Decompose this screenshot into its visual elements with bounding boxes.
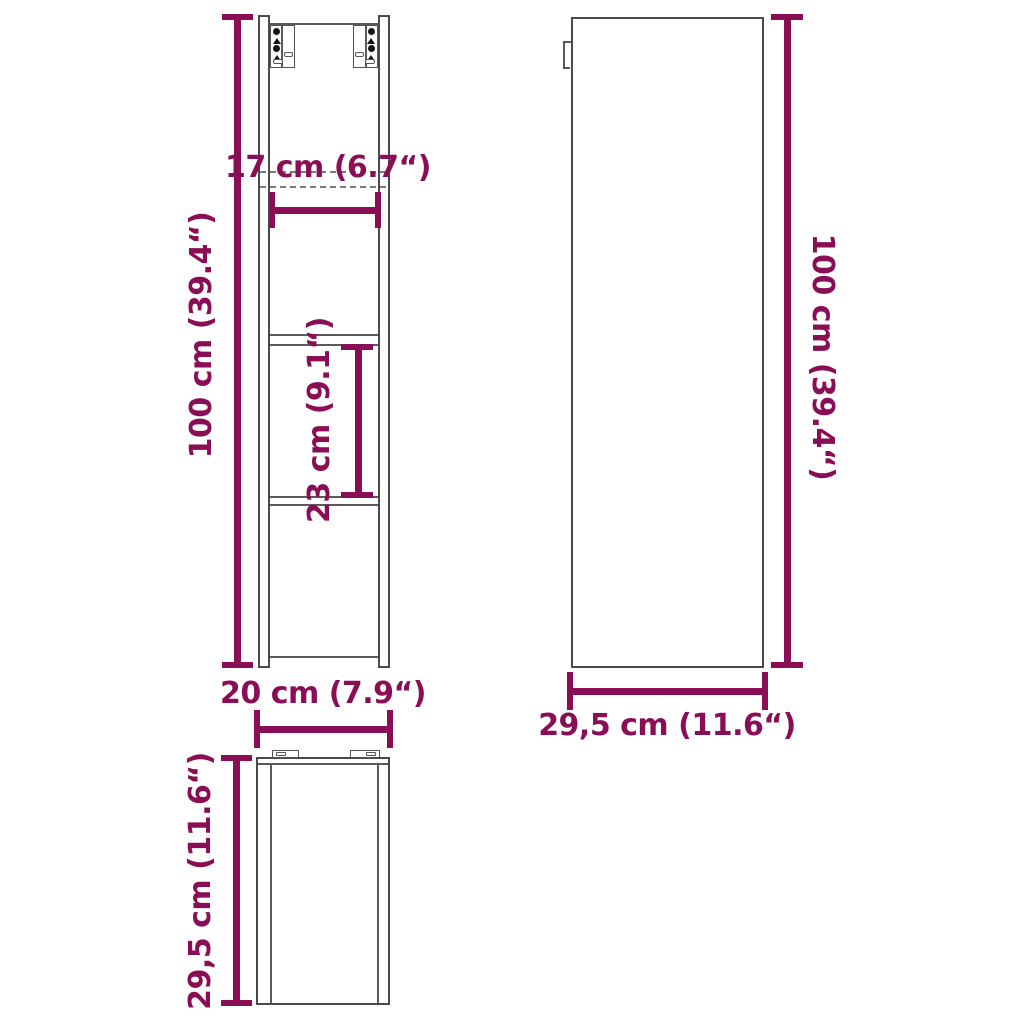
dim-cap [341, 492, 373, 498]
top-view-right-wall [377, 765, 379, 1003]
front-shelf-spacing-label: 23 cm (9.1“) [302, 300, 338, 540]
bracket-screw [273, 28, 280, 35]
dim-line [234, 18, 241, 664]
bracket-slot [365, 59, 375, 64]
bracket-slot [276, 752, 286, 756]
side-height-label: 100 cm (39.4“) [800, 207, 840, 507]
mount-bracket-right [353, 25, 378, 68]
top-view-bracket-tab-left [272, 750, 299, 758]
front-left-rail [258, 15, 270, 668]
bracket-arrow-icon [367, 38, 375, 44]
dim-line [257, 726, 390, 733]
bracket-slot [366, 752, 376, 756]
bracket-slot [284, 52, 293, 57]
front-top-width-label: 17 cm (6.7“) [208, 150, 448, 186]
bracket-screw [273, 45, 280, 52]
side-depth-label: 29,5 cm (11.6“) [517, 708, 817, 744]
dim-line [570, 688, 765, 695]
dim-line [272, 207, 378, 214]
bracket-slot [355, 52, 364, 57]
top-view-outline [256, 757, 390, 1005]
dimension-diagram: 100 cm (39.4“) 17 cm (6.7“) 23 cm (9.1“)… [0, 0, 1024, 1024]
dim-line [233, 759, 240, 1002]
dim-line [355, 347, 362, 494]
front-right-rail [378, 15, 390, 668]
bracket-slot [273, 59, 283, 64]
dim-line [784, 18, 791, 664]
side-panel-outline [571, 17, 764, 668]
front-hidden-edge-lower [260, 186, 386, 188]
front-bottom-shelf-edge [270, 656, 378, 658]
dim-cap [222, 662, 253, 668]
mount-bracket-left [270, 25, 295, 68]
front-height-label: 100 cm (39.4“) [184, 185, 224, 485]
top-view-back-edge [258, 763, 388, 765]
bracket-arrow-icon [273, 38, 281, 44]
side-hanger-hook [563, 67, 570, 69]
dim-cap [771, 662, 803, 668]
front-width-label: 20 cm (7.9“) [193, 676, 453, 712]
bracket-screw [368, 28, 375, 35]
bracket-screw [368, 45, 375, 52]
top-view-bracket-tab-right [350, 750, 380, 758]
top-depth-label: 29,5 cm (11.6“) [183, 731, 219, 1024]
top-view-left-wall [270, 765, 272, 1003]
dim-cap [221, 1000, 252, 1006]
side-hanger-hook [563, 41, 565, 69]
